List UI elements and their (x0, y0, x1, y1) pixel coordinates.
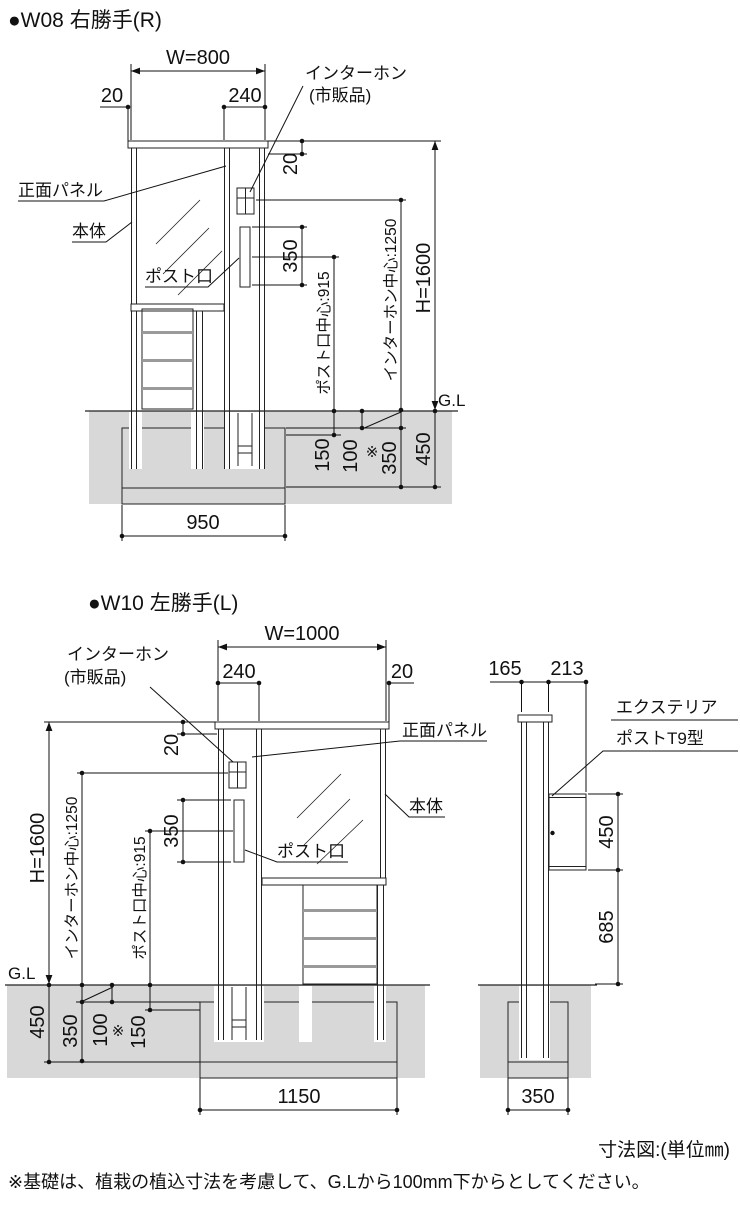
w08-dim-side-offset: 20 (101, 85, 123, 107)
side-mailbox (549, 794, 586, 870)
w10-dim-height: H=1600 (27, 813, 49, 884)
w10-dim-base-offset: 100 (90, 1013, 112, 1046)
w08-label-body: 本体 (72, 222, 106, 241)
side-label-product-2: ポストT9型 (616, 729, 704, 748)
side-label-product-1: エクステリア (616, 698, 718, 717)
side-dim-box-height: 450 (596, 815, 618, 848)
side-view: 165 213 エクステリア ポストT9型 450 685 350 (478, 658, 738, 1115)
w10-ground-line-label: G.L (8, 964, 35, 983)
w10-lattice-screen (303, 885, 377, 984)
w08-intercom-box (237, 188, 254, 214)
w10-label-intercom-1: インターホン (67, 645, 169, 664)
w10-label-body: 本体 (409, 797, 443, 816)
w08-lattice-screen (142, 309, 193, 409)
footer-unit-note: 寸法図:(単位㎜) (598, 1139, 730, 1161)
w08-bottom-rail (131, 304, 224, 311)
w10-dim-width: W=1000 (264, 623, 339, 645)
w10-cap (215, 722, 389, 729)
w10-label-front-panel: 正面パネル (402, 721, 487, 740)
w08-dim-embed-depth: 150 (312, 438, 334, 471)
dimension-drawing: ●W08 右勝手(R) (0, 0, 740, 1210)
side-embedded-post (519, 986, 550, 1060)
w08-dim-base-offset: 100 (340, 439, 362, 472)
side-dim-post-depth: 165 (488, 658, 521, 680)
w08-dim-intercom-center: インターホン中心:1250 (382, 218, 400, 381)
w08-label-front-panel: 正面パネル (18, 181, 103, 200)
w10-bottom-rail (262, 878, 386, 885)
w10-dim-total-depth: 450 (27, 1005, 49, 1038)
w08-label-intercom-2: (市販品) (309, 86, 371, 105)
w10-dim-base-depth: 350 (60, 1014, 82, 1047)
w08-dim-slot-height: 350 (280, 239, 302, 272)
w08-label-intercom-1: インターホン (305, 64, 407, 83)
w08-label-post-slot: ポスト口 (145, 267, 213, 286)
w08-dim-total-depth: 450 (413, 432, 435, 465)
w10-dim-base-width: 1150 (277, 1086, 320, 1108)
w08-dim-base-width: 950 (186, 512, 219, 534)
w10-post-slot-opening (234, 800, 244, 862)
w08-ref-mark: ※ (366, 444, 379, 461)
w10-label-post-slot: ポスト口 (277, 842, 345, 861)
w10-intercom-box (229, 762, 246, 788)
w08-dim-width: W=800 (166, 47, 230, 69)
w08-post-slot-opening (240, 227, 250, 287)
w08-title: ●W08 右勝手(R) (8, 9, 162, 32)
w10-dim-slot-center: ポスト口中心:915 (131, 836, 149, 959)
side-post-cap (518, 715, 552, 722)
side-dim-box-depth: 213 (550, 658, 583, 680)
w10-front-view: ●W10 左勝手(L) (5, 592, 487, 1115)
w08-dim-height: H=1600 (413, 243, 435, 314)
w10-dim-side-offset: 20 (391, 661, 413, 683)
w08-dim-column-width: 240 (228, 85, 261, 107)
w10-dim-column-width: 240 (222, 661, 255, 683)
w08-front-view: ●W08 右勝手(R) (8, 9, 465, 541)
w08-cap (128, 141, 268, 148)
w08-ground-line-label: G.L (438, 391, 465, 410)
w08-dim-slot-center: ポスト口中心:915 (315, 271, 333, 394)
footer-base-note: ※基礎は、植栽の植込寸法を考慮して、G.Lから100mm下からとしてください。 (8, 1172, 650, 1192)
w10-dim-top-offset: 20 (161, 734, 183, 756)
footer: 寸法図:(単位㎜) ※基礎は、植栽の植込寸法を考慮して、G.Lから100mm下か… (8, 1139, 730, 1192)
dimension-drawing-page: ●W08 右勝手(R) (0, 0, 740, 1210)
side-dim-below-box: 685 (596, 910, 618, 943)
w08-dim-top-offset: 20 (280, 153, 302, 175)
side-dim-base-width: 350 (521, 1086, 554, 1108)
w10-dim-intercom-center: インターホン中心:1250 (63, 796, 81, 959)
w10-dim-embed-depth: 150 (128, 1015, 150, 1048)
w08-dim-base-depth: 350 (379, 441, 401, 474)
w10-label-intercom-2: (市販品) (64, 668, 126, 687)
w10-title: ●W10 左勝手(L) (88, 592, 238, 615)
w10-ref-mark: ※ (112, 1023, 125, 1040)
